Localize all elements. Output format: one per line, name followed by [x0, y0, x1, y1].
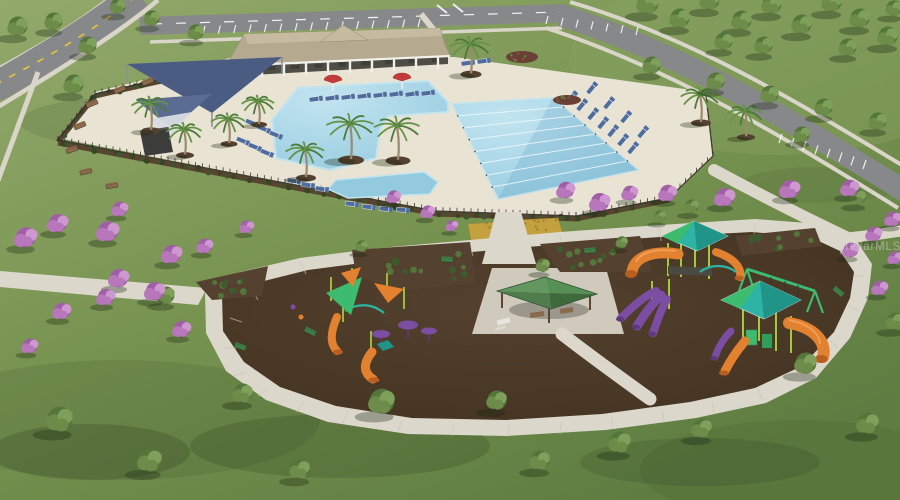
slide-exit [333, 350, 343, 355]
tree-canopy [146, 459, 158, 471]
mound-plant [561, 95, 563, 97]
hedge-shrub [357, 198, 361, 202]
mound-plant [522, 58, 524, 60]
slide-exit [648, 332, 656, 337]
bed-shrub [574, 248, 580, 254]
bed-shrub [452, 277, 456, 281]
tree-shadow [839, 27, 869, 35]
tree-shadow [476, 409, 506, 417]
chair-backrest [399, 91, 403, 96]
slide-exit [719, 371, 729, 376]
tree-canopy [875, 121, 884, 130]
tree-canopy [677, 18, 687, 28]
bloom-cluster [59, 310, 67, 318]
bloom-cluster [105, 231, 115, 241]
bed-shrub [808, 238, 813, 243]
tree-shadow [837, 256, 858, 262]
tree-shadow [882, 264, 900, 269]
chair-backrest [351, 94, 355, 99]
tree-shadow [652, 200, 675, 207]
bed-shrub [386, 263, 392, 269]
palm-shadow [131, 130, 154, 136]
bed-shrub [229, 288, 235, 294]
bench-back [441, 257, 453, 258]
tree-shadow [781, 33, 811, 41]
lane-anchor [605, 142, 607, 144]
tree-canopy [802, 362, 813, 373]
tree-canopy [857, 18, 867, 28]
tree-shadow [705, 49, 732, 57]
slide-exit [616, 317, 624, 322]
tree-canopy [55, 418, 68, 431]
hedge-shrub [491, 215, 495, 219]
tree-shadow [53, 93, 83, 101]
hedge-shrub [437, 213, 441, 217]
bloom-cluster [392, 196, 398, 202]
mound-plant [510, 54, 512, 56]
bloom-cluster [665, 192, 673, 200]
tree-canopy [51, 21, 60, 30]
tree-shadow [349, 252, 367, 257]
tree-canopy [885, 36, 895, 46]
bloom-cluster [245, 226, 251, 232]
bench-back [584, 248, 596, 249]
tree-canopy [494, 400, 504, 410]
flower-texture [486, 222, 488, 224]
tree-canopy [541, 265, 548, 272]
lane-anchor [491, 186, 493, 188]
mound-plant [517, 52, 519, 54]
bloom-cluster [722, 197, 731, 206]
bed-shrub [455, 251, 461, 257]
chair-backrest [355, 202, 359, 207]
tree-canopy [163, 295, 172, 304]
planting-mound [553, 95, 581, 105]
tree-canopy [799, 24, 809, 34]
hedge-shrub [205, 169, 211, 175]
tree-shadow [745, 53, 772, 61]
hedge-shrub [140, 157, 144, 161]
tree-shadow [234, 233, 252, 238]
lane-anchor [463, 127, 465, 129]
tree-shadow [829, 55, 856, 63]
tree-canopy [616, 441, 627, 452]
tree-canopy [821, 107, 830, 116]
tree-shadow [179, 40, 203, 47]
lane-anchor [480, 163, 482, 165]
palm-shadow [372, 159, 402, 167]
chair-backrest [311, 183, 315, 188]
tree-shadow [834, 195, 857, 202]
palm-shadow [680, 122, 704, 128]
palm-shadow [166, 155, 188, 160]
tree-shadow [697, 89, 724, 97]
tree-canopy [690, 206, 697, 213]
tree-canopy [297, 469, 307, 479]
tree-shadow [125, 470, 161, 480]
tree-canopy [644, 2, 655, 13]
tree-shadow [811, 11, 841, 19]
tree-canopy [240, 393, 250, 403]
lane-anchor [468, 139, 470, 141]
clubhouse-column [371, 59, 373, 72]
bed-shrub [570, 265, 576, 271]
spring-rider [291, 305, 296, 310]
tree-shadow [785, 142, 809, 149]
tree-canopy [377, 400, 390, 413]
tree-shadow [35, 29, 62, 37]
flower-texture [535, 225, 537, 227]
tree-shadow [191, 252, 212, 258]
bloom-cluster [55, 223, 64, 232]
chair-backrest [319, 96, 323, 101]
tree-shadow [441, 231, 457, 236]
chair-backrest [367, 93, 371, 98]
hedge-shrub [474, 212, 479, 217]
lane-anchor [457, 115, 459, 117]
lane-anchor [627, 160, 629, 162]
clubhouse-column [349, 60, 351, 73]
bed-shrub [449, 267, 456, 274]
bed-shrub [212, 280, 217, 285]
hedge-shrub [231, 174, 236, 179]
bloom-cluster [118, 208, 125, 215]
tree-shadow [279, 478, 309, 486]
tree-shadow [805, 115, 832, 123]
bed-shrub [749, 235, 756, 242]
hedge-shrub [328, 192, 332, 196]
bed-shrub [794, 231, 800, 237]
tree-shadow [625, 12, 658, 21]
flower-texture [537, 221, 539, 223]
hedge-shrub [322, 192, 327, 197]
mound-plant [563, 97, 565, 99]
hedge-shrub [225, 174, 230, 179]
cafe-table-set [291, 64, 299, 69]
bloom-cluster [878, 287, 885, 294]
lane-anchor [616, 151, 618, 153]
park-bench [584, 248, 596, 253]
slide-exit [369, 378, 380, 383]
chair-backrest [335, 95, 339, 100]
tree-shadow [550, 197, 573, 204]
tree-canopy [649, 65, 658, 74]
flower-texture [543, 220, 545, 222]
flower-texture [488, 226, 490, 228]
flower-texture [545, 229, 547, 231]
hedge-shrub [63, 134, 67, 138]
rendering-canvas: StellarMLS [0, 0, 900, 500]
hedge-shrub [463, 213, 469, 219]
tree-canopy [891, 8, 899, 16]
planting-mound [506, 51, 538, 63]
mushroom-canopy-purple [421, 328, 437, 335]
tree-shadow [69, 53, 96, 61]
bloom-cluster [426, 211, 432, 217]
hedge-shrub [614, 209, 618, 213]
tree-shadow [16, 352, 37, 358]
bed-shrub [237, 280, 241, 284]
palm-shadow [324, 158, 355, 166]
tree-shadow [783, 372, 816, 381]
lane-anchor [595, 133, 597, 135]
tree-shadow [845, 432, 878, 441]
chair-backrest [383, 92, 387, 97]
tree-canopy [829, 2, 839, 12]
bloom-cluster [563, 189, 571, 197]
tree-shadow [859, 129, 886, 137]
bloom-cluster [28, 345, 35, 352]
chair-backrest [325, 187, 329, 192]
hedge-shrub [456, 214, 461, 219]
bloom-cluster [787, 189, 796, 198]
tree-canopy [845, 47, 854, 56]
palm-shadow [727, 137, 749, 142]
bed-shrub [776, 236, 781, 241]
hedge-shrub [217, 171, 221, 175]
tree-canopy [767, 94, 776, 103]
tree-shadow [519, 469, 549, 477]
hedge-shrub [180, 164, 184, 168]
tree-shadow [659, 27, 689, 35]
bloom-cluster [116, 278, 125, 287]
tree-shadow [689, 9, 719, 17]
bed-shrub [410, 266, 417, 273]
tree-shadow [681, 437, 711, 445]
tree-shadow [101, 14, 125, 21]
tree-shadow [381, 203, 399, 208]
tree-shadow [355, 412, 394, 423]
tree-shadow [841, 205, 865, 212]
hedge-shrub [240, 177, 244, 181]
flower-texture [536, 228, 538, 230]
cafe-table-set [362, 60, 370, 65]
tree-canopy [761, 45, 770, 54]
bed-shrub [590, 259, 597, 266]
tree-shadow [609, 248, 627, 253]
mound-plant [513, 58, 515, 60]
bed-shrub [566, 251, 573, 258]
park-bench [441, 257, 453, 262]
clubhouse-column [393, 58, 395, 71]
hedge-shrub [170, 163, 175, 168]
tree-shadow [597, 451, 630, 460]
hedge-shrub [91, 148, 97, 154]
tree-canopy [658, 216, 664, 222]
bed-shrub [403, 269, 408, 274]
tree-shadow [90, 304, 113, 311]
chair-backrest [372, 205, 376, 210]
palm-shadow [285, 177, 309, 183]
bed-shrub [419, 269, 424, 274]
bloom-cluster [891, 218, 898, 225]
bloom-cluster [450, 225, 455, 230]
tree-canopy [71, 84, 81, 94]
watermark-text: StellarMLS [837, 241, 900, 253]
bloom-cluster [169, 254, 178, 263]
tree-shadow [528, 272, 549, 278]
cafe-table-set [315, 63, 323, 68]
tree-canopy [620, 242, 626, 248]
tree-canopy [85, 45, 94, 54]
cafe-table-set [338, 62, 346, 67]
tree-canopy [115, 6, 123, 14]
bed-shrub [557, 246, 564, 253]
tree-shadow [46, 318, 69, 325]
bed-shrub [601, 254, 606, 259]
chair-backrest [487, 58, 491, 63]
mushroom-canopy-purple [372, 330, 390, 338]
clubhouse-column [437, 56, 439, 69]
hedge-shrub [160, 160, 165, 165]
tree-shadow [751, 102, 778, 110]
hedge-shrub [304, 188, 309, 193]
tree-canopy [739, 20, 749, 30]
hedge-shrub [247, 178, 252, 183]
bed-shrub [461, 265, 466, 270]
hedge-shrub [630, 205, 635, 210]
bed-shrub [578, 262, 584, 268]
bed-shrub [392, 259, 398, 265]
flower-texture [533, 220, 535, 222]
tree-canopy [769, 4, 779, 14]
bloom-cluster [179, 328, 187, 336]
bloom-cluster [203, 245, 210, 252]
clubhouse-column [415, 57, 417, 70]
tree-shadow [222, 402, 252, 410]
clubhouse-column [305, 62, 307, 75]
cafe-table-set [385, 59, 393, 64]
tree-shadow [33, 430, 72, 441]
bed-shrub [778, 244, 783, 249]
chair-backrest [431, 90, 435, 95]
lane-anchor [474, 151, 476, 153]
tree-shadow [135, 26, 159, 33]
bed-shrub [218, 293, 224, 299]
palm-shadow [449, 73, 474, 79]
lane-anchor [573, 115, 575, 117]
tree-shadow [751, 13, 781, 21]
slide-exit [735, 276, 744, 281]
tree-shadow [633, 73, 660, 81]
aerial-rendering: StellarMLS [0, 0, 900, 500]
bloom-cluster [23, 237, 33, 247]
mound-plant [568, 97, 570, 99]
tree-shadow [647, 222, 665, 227]
mushroom-canopy-purple [398, 321, 418, 330]
clubhouse-column [283, 63, 285, 76]
clubhouse-column [327, 61, 329, 74]
palm-shadow [242, 124, 261, 129]
hedge-shrub [104, 150, 108, 154]
hedge-shrub [481, 213, 487, 219]
mound-plant [557, 100, 559, 102]
hedge-shrub [144, 158, 150, 164]
mound-plant [556, 97, 558, 99]
bloom-cluster [872, 233, 879, 240]
tree-shadow [166, 336, 189, 343]
bloom-cluster [152, 291, 161, 300]
palm-shadow [211, 143, 231, 148]
spring-rider [299, 315, 304, 320]
lane-anchor [486, 174, 488, 176]
flower-texture [555, 219, 557, 221]
chair-backrest [415, 91, 419, 96]
lane-anchor [584, 124, 586, 126]
tree-canopy [537, 460, 547, 470]
tree-shadow [106, 215, 127, 221]
bed-shrub [240, 288, 247, 295]
hedge-shrub [286, 185, 292, 191]
tree-canopy [864, 422, 875, 433]
mound-plant [524, 55, 526, 57]
bloom-cluster [893, 257, 899, 263]
tree-canopy [149, 18, 157, 26]
hedge-shrub [363, 198, 367, 202]
tube-slide-exit [625, 270, 637, 278]
tree-shadow [415, 218, 433, 223]
hedge-shrub [443, 212, 448, 217]
tree-shadow [616, 199, 637, 205]
bloom-cluster [847, 187, 855, 195]
tree-canopy [360, 246, 366, 252]
lane-anchor [563, 106, 565, 108]
tree-shadow [867, 45, 897, 53]
hedge-shrub [565, 216, 571, 222]
chair-backrest [406, 208, 410, 213]
tree-canopy [193, 32, 201, 40]
bloom-cluster [628, 192, 635, 199]
bed-shrub [461, 271, 468, 278]
hedge-shrub [187, 166, 192, 171]
tree-shadow [677, 213, 698, 219]
bloom-cluster [103, 296, 111, 304]
tree-canopy [713, 81, 722, 90]
tree-canopy [721, 41, 730, 50]
slide-exit [632, 325, 640, 330]
bed-shrub [221, 282, 227, 288]
tree-shadow [866, 294, 887, 300]
climb-panel [762, 334, 772, 348]
bloom-cluster [597, 202, 606, 211]
bed-shrub [755, 236, 761, 242]
tree-canopy [15, 26, 25, 36]
tree-canopy [799, 134, 807, 142]
slide-exit [710, 356, 718, 360]
tree-canopy [699, 428, 709, 438]
